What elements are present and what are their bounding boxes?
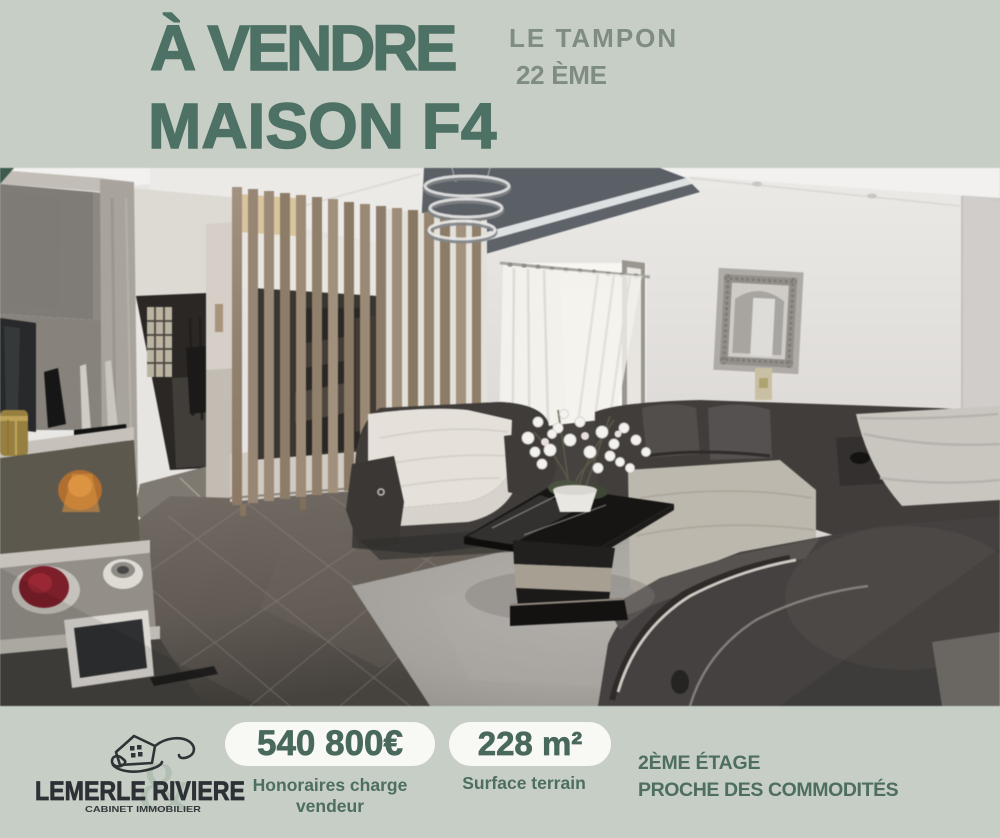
svg-text:LEMERLE RIVIERE: LEMERLE RIVIERE xyxy=(35,776,245,806)
svg-text:CABINET IMMOBILIER: CABINET IMMOBILIER xyxy=(85,804,201,814)
